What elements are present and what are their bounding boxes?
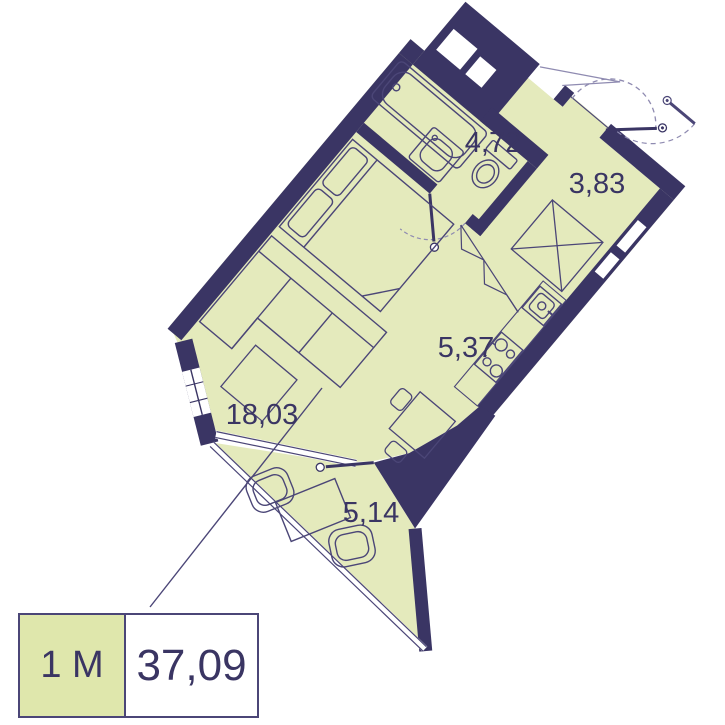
- area-label-kitchen: 5,37: [438, 332, 494, 364]
- legend-total-area: 37,09: [126, 615, 257, 716]
- floor-plan-page: 4,72 3,83 5,37 18,03 5,14 1 М 37,09: [0, 0, 725, 725]
- plan-rotated-group: [114, 0, 725, 652]
- area-label-living-room: 18,03: [226, 399, 299, 431]
- area-label-balcony: 5,14: [343, 497, 399, 529]
- area-label-hallway: 3,83: [569, 168, 625, 200]
- legend-unit-type: 1 М: [20, 615, 126, 716]
- legend-box: 1 М 37,09: [18, 613, 259, 718]
- area-label-bathroom: 4,72: [465, 127, 521, 159]
